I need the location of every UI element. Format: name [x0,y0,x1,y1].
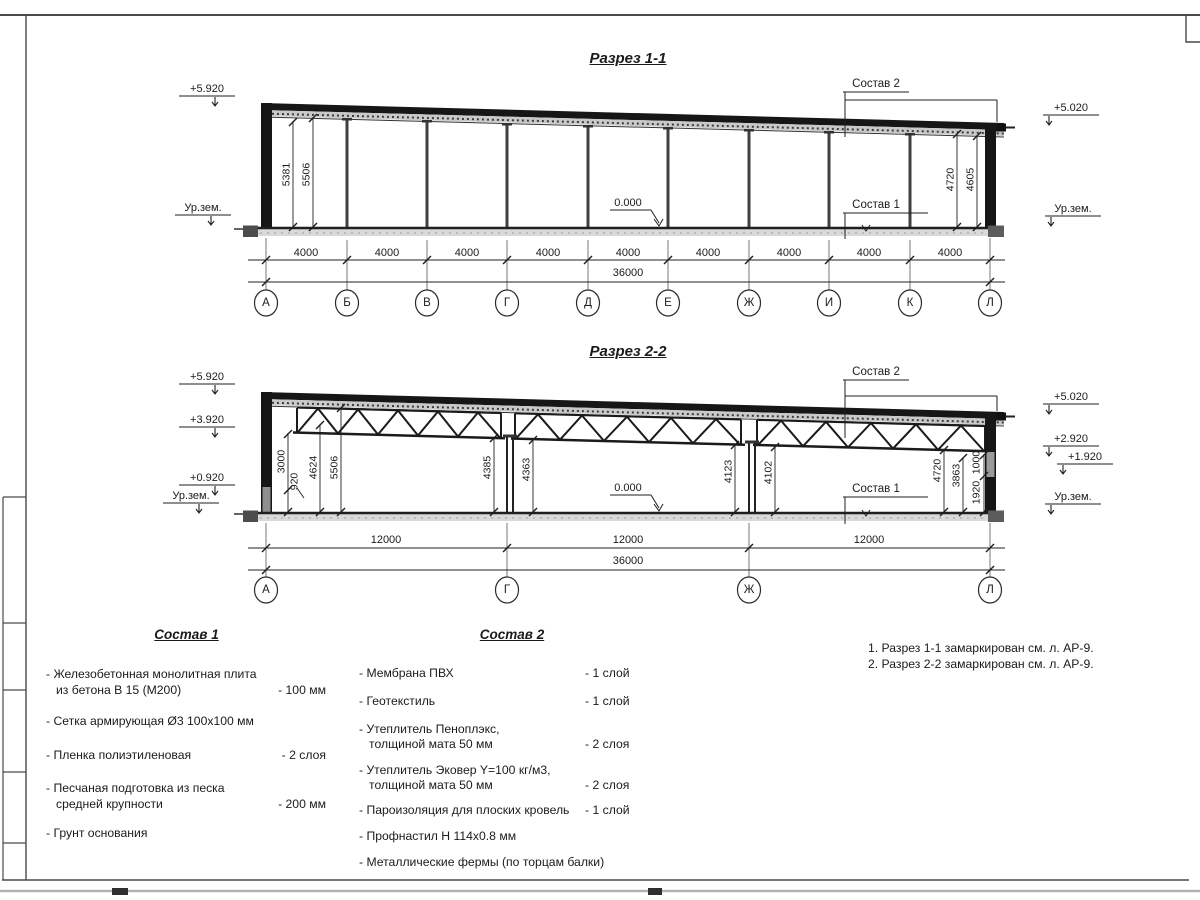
legend1-item: из бетона В 15 (М200) [56,683,181,697]
vertical-dim: 1920 [971,463,984,523]
callout-label-sostav1: Состав 1 [845,199,907,211]
grid-bubble-label: И [818,291,840,316]
section1-grid-bubbles [255,290,1002,316]
vertical-dim: 5381 [281,145,294,205]
elevation-label: +3.920 [179,414,235,426]
bay-dim: 12000 [588,534,668,546]
legend2-qty: - 1 слой [585,666,647,680]
legend2-item: - Мембрана ПВХ [359,666,454,680]
callout-label-sostav1: Состав 1 [845,483,907,495]
vertical-dim: 4385 [482,438,495,498]
legend2-title: Состав 2 [357,627,667,642]
grid-bubble-label: Г [496,291,518,316]
grid-bubble-label: Ж [738,291,760,316]
grid-bubble-label: Е [657,291,679,316]
section2-datum-leader [610,495,663,511]
datum-label: 0.000 [605,197,651,209]
datum-label: 0.000 [605,482,651,494]
bay-dim: 12000 [346,534,426,546]
section1-title: Разрез 1-1 [558,50,698,67]
section1-datum-leader [610,210,663,226]
legend1-qty: - 100 мм [270,683,326,697]
grid-bubble-label: А [255,578,277,603]
ground-level-label: Ур.зем. [163,490,219,502]
section1-roof [262,103,1015,137]
section2-title: Разрез 2-2 [558,343,698,360]
legend1-item: - Пленка полиэтиленовая [46,748,191,762]
vertical-dim: 5506 [301,145,314,205]
callout-label-sostav2: Состав 2 [845,78,907,90]
bay-dim: 4000 [508,247,588,259]
legend2-qty: - 2 слоя [585,778,647,792]
grid-bubble-label: Л [979,291,1001,316]
elevation-label: +5.920 [179,83,235,95]
vertical-dim: 4102 [763,443,776,503]
section2-dimension-lines [248,523,1005,577]
grid-bubble-label: К [899,291,921,316]
legend2-qty: - 1 слой [585,803,647,817]
legend2-item: - Геотекстиль [359,694,435,708]
legend1-item: - Железобетонная монолитная плита [46,667,257,681]
elevation-label: +0.920 [179,472,235,484]
drawing-linework [0,0,1200,900]
section2-floor-slab [234,511,1004,523]
grid-bubble-label: В [416,291,438,316]
legend1-item: - Грунт основания [46,826,147,840]
callout-label-sostav2: Состав 2 [845,366,907,378]
vertical-dim: 4123 [723,442,736,502]
drawing-sheet: Разрез 1-1 +5.920 Ур.зем. +5.020 Ур.зем.… [0,0,1200,900]
note-line: 1. Разрез 1-1 замаркирован см. л. АР-9. [868,640,1094,656]
total-dim: 36000 [588,555,668,567]
grid-bubble-label: Б [336,291,358,316]
vertical-dim: 4624 [308,438,321,498]
vertical-dim: 3863 [951,446,964,506]
vertical-dim: 4363 [521,440,534,500]
legend1-item: - Сетка армирующая Ø3 100x100 мм [46,714,254,728]
bay-dim: 4000 [266,247,346,259]
elevation-label: +2.920 [1043,433,1099,445]
grid-bubble-label: А [255,291,277,316]
bay-dim: 4000 [347,247,427,259]
legend2-qty: - 2 слоя [585,737,647,751]
bay-dim: 4000 [588,247,668,259]
bay-dim: 4000 [829,247,909,259]
legend2-qty: - 1 слой [585,694,647,708]
vertical-dim: 920 [289,452,302,512]
elevation-label: +1.920 [1057,451,1113,463]
legend1-qty: - 200 мм [270,797,326,811]
legend2-item: - Утеплитель Пеноплэкс, [359,722,500,736]
bay-dim: 4000 [668,247,748,259]
vertical-dim: 3000 [276,432,289,492]
section1-dimension-lines [248,238,1005,290]
legend2-item: - Профнастил Н 114x0.8 мм [359,829,516,843]
scan-edge-marks [0,888,1200,895]
grid-bubble-label: Г [496,578,518,603]
grid-bubble-label: Д [577,291,599,316]
vertical-dim: 4720 [945,150,958,210]
ground-level-label: Ур.зем. [1045,491,1101,503]
vertical-dim: 4720 [932,441,945,501]
grid-bubble-label: Ж [738,578,760,603]
legend1-qty: - 2 слоя [270,748,326,762]
ground-level-label: Ур.зем. [175,202,231,214]
vertical-dim: 4605 [965,150,978,210]
elevation-label: +5.920 [179,371,235,383]
legend2-item: - Металлические фермы (по торцам балки) [359,855,604,869]
grid-bubble-label: Л [979,578,1001,603]
legend2-item: толщиной мата 50 мм [369,778,493,792]
section2-grid-bubbles [255,577,1002,603]
legend1-item: средней крупности [56,797,163,811]
note-line: 2. Разрез 2-2 замаркирован см. л. АР-9. [868,656,1094,672]
ground-level-label: Ур.зем. [1045,203,1101,215]
legend2-item: - Пароизоляция для плоских кровель [359,803,569,817]
legend1-item: - Песчаная подготовка из песка [46,781,225,795]
legend2-item: толщиной мата 50 мм [369,737,493,751]
legend2-item: - Утеплитель Эковер Y=100 кг/м3, [359,763,551,777]
elevation-label: +5.020 [1043,391,1099,403]
bay-dim: 4000 [749,247,829,259]
bay-dim: 4000 [910,247,990,259]
legend1-title: Состав 1 [44,627,329,642]
bay-dim: 12000 [829,534,909,546]
vertical-dim: 5506 [329,438,342,498]
bay-dim: 4000 [427,247,507,259]
elevation-label: +5.020 [1043,102,1099,114]
total-dim: 36000 [588,267,668,279]
section1-floor-slab [234,226,1004,238]
